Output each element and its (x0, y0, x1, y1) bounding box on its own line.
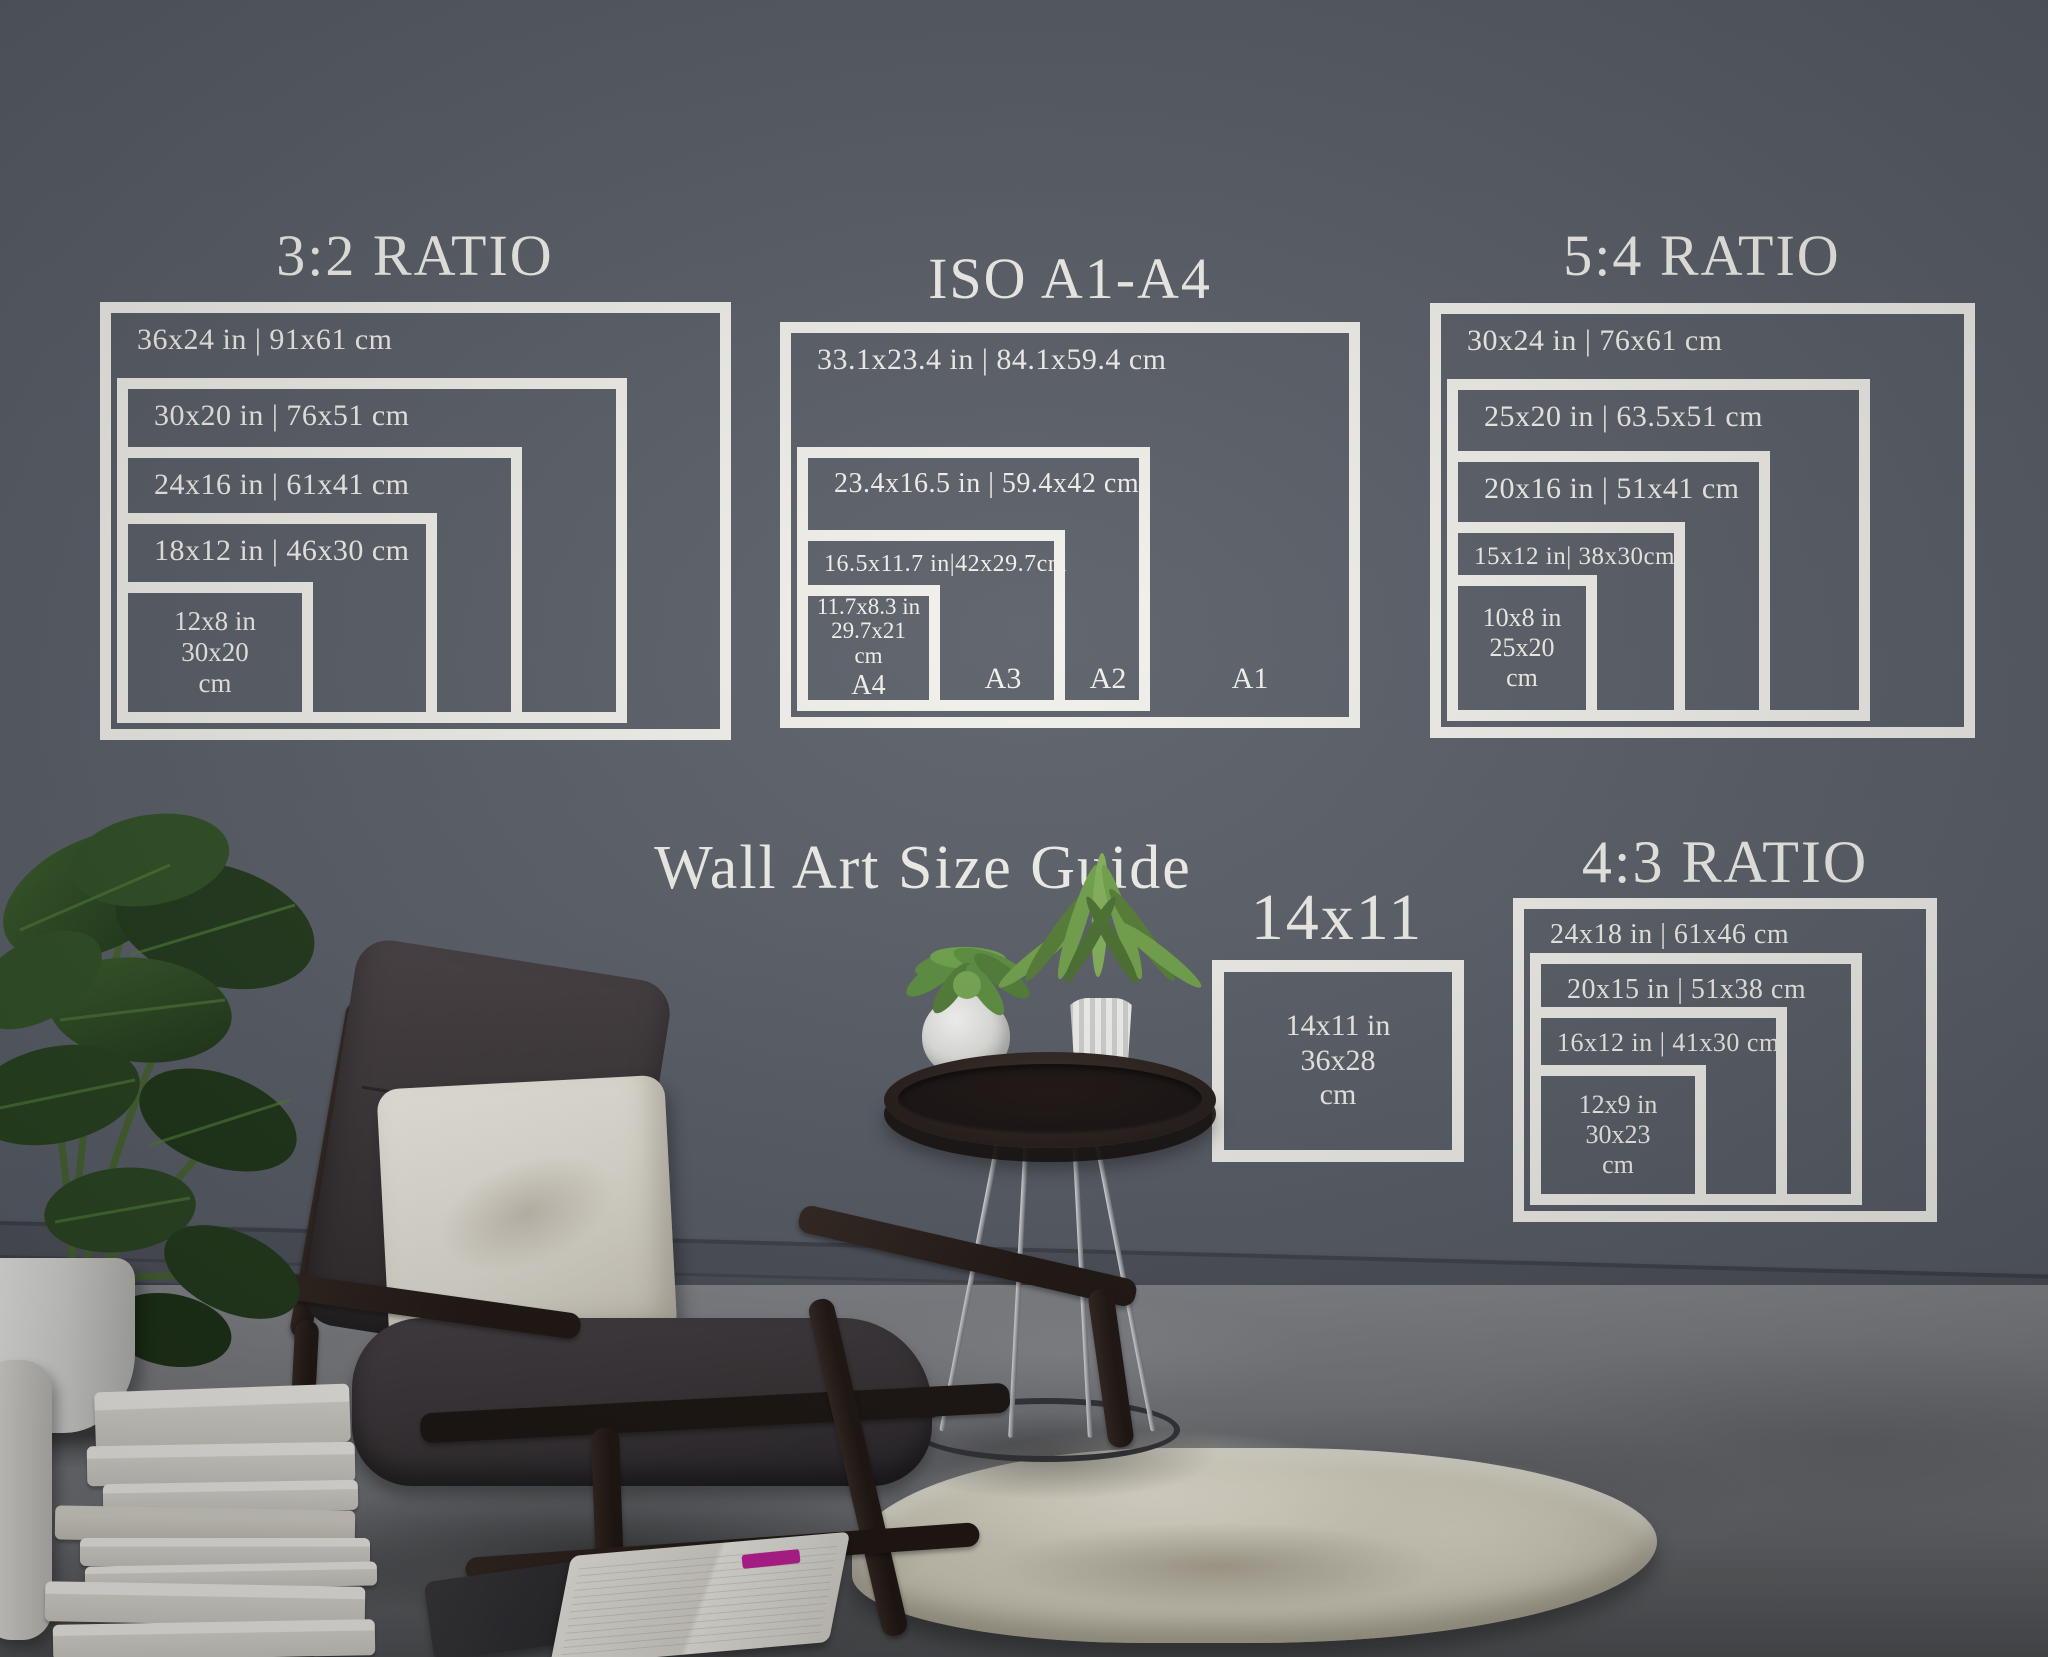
size-line: cm (1602, 1150, 1634, 1180)
chair-arm-post (1087, 1287, 1135, 1449)
page-title: Wall Art Size Guide (654, 833, 1192, 904)
size-label-36x24: 36x24 in | 91x61 cm (137, 323, 393, 357)
size-label-30x24: 30x24 in | 76x61 cm (1467, 324, 1723, 358)
frame-a4: 11.7x8.3 in 29.7x21 cm A4 (797, 585, 940, 711)
chair-right-armrest (796, 1204, 1138, 1309)
size-label-a2: 23.4x16.5 in | 59.4x42 cm (834, 468, 1139, 500)
paper-label-a2: A2 (1090, 662, 1127, 696)
size-label-14x11: 14x11 in 36x28 cm (1224, 972, 1452, 1150)
size-label-18x12: 18x12 in | 46x30 cm (154, 534, 410, 568)
size-line: 30x20 (181, 637, 249, 668)
size-line: 10x8 in (1483, 603, 1562, 633)
size-line: 14x11 in (1286, 1009, 1391, 1044)
book-stack (25, 1388, 385, 1657)
size-line: cm (1506, 663, 1538, 693)
size-line: 30x23 (1586, 1120, 1651, 1150)
paper-label-a4: A4 (851, 671, 885, 701)
size-line: 29.7x21 (831, 619, 906, 644)
size-label-30x20: 30x20 in | 76x51 cm (154, 399, 410, 433)
size-label-a1: 33.1x23.4 in | 84.1x59.4 cm (817, 343, 1167, 377)
frame-14x11: 14x11 in 36x28 cm (1212, 960, 1464, 1162)
frame-12x8: 12x8 in 30x20 cm (117, 582, 313, 723)
room-scene: 3:2 RATIO 36x24 in | 91x61 cm 30x20 in |… (0, 0, 2048, 1657)
book (53, 1619, 376, 1657)
book (94, 1384, 351, 1451)
size-line: 12x9 in (1579, 1090, 1658, 1120)
size-label-24x18: 24x18 in | 61x46 cm (1550, 919, 1789, 951)
section-title-3-2: 3:2 RATIO (276, 222, 553, 289)
size-label-25x20: 25x20 in | 63.5x51 cm (1484, 400, 1763, 434)
section-title-iso: ISO A1-A4 (928, 245, 1212, 312)
frame-12x9: 12x9 in 30x23 cm (1530, 1065, 1706, 1205)
paper-label-a1: A1 (1232, 662, 1269, 696)
size-label-16x12: 16x12 in | 41x30 cm (1557, 1028, 1780, 1058)
size-label-12x8: 12x8 in 30x20 cm (128, 593, 302, 712)
size-line: cm (854, 644, 882, 669)
size-line: cm (199, 668, 232, 699)
size-label-15x12: 15x12 in| 38x30cm (1474, 543, 1675, 571)
size-line: 12x8 in (174, 606, 256, 637)
size-label-10x8: 10x8 in 25x20 cm (1458, 586, 1586, 710)
size-label-24x16: 24x16 in | 61x41 cm (154, 468, 410, 502)
size-label-12x9: 12x9 in 30x23 cm (1541, 1076, 1695, 1194)
size-label-20x16: 20x16 in | 51x41 cm (1484, 472, 1740, 506)
size-label-a3: 16.5x11.7 in|42x29.7cm (824, 551, 1067, 578)
section-title-14x11: 14x11 (1251, 880, 1424, 956)
size-label-a4: 11.7x8.3 in 29.7x21 cm A4 (808, 596, 929, 700)
pillow-crease (422, 1131, 632, 1295)
size-line: 25x20 (1490, 633, 1555, 663)
size-label-20x15: 20x15 in | 51x38 cm (1567, 974, 1806, 1006)
size-line: cm (1320, 1078, 1357, 1113)
section-title-5-4: 5:4 RATIO (1563, 222, 1840, 289)
size-line: 11.7x8.3 in (817, 595, 920, 620)
size-line: 36x28 (1301, 1044, 1376, 1079)
section-title-4-3: 4:3 RATIO (1582, 828, 1868, 897)
paper-label-a3: A3 (985, 662, 1022, 696)
frame-10x8: 10x8 in 25x20 cm (1447, 575, 1597, 721)
